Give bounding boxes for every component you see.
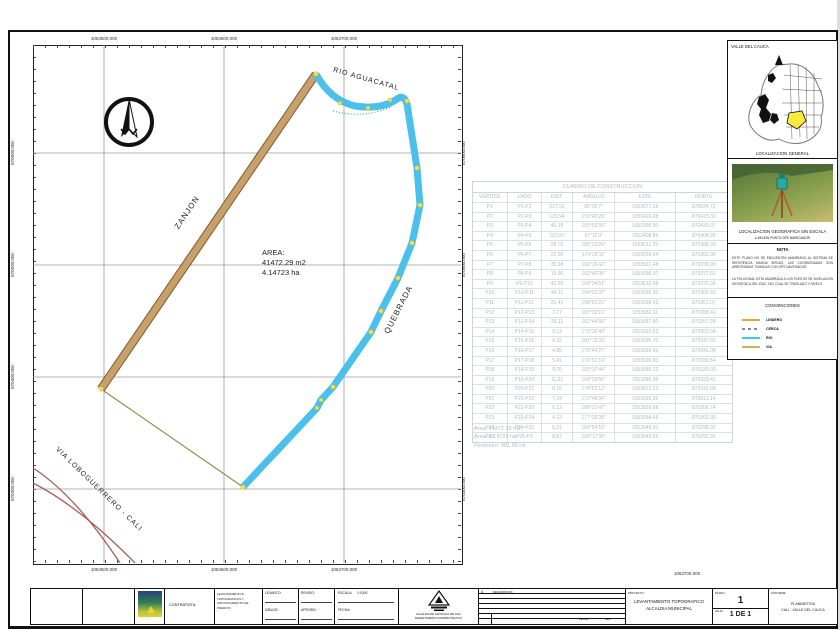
cell-dist: 4.23 — [542, 414, 573, 423]
cell-lado: P15-P16 — [508, 337, 543, 346]
cell-angulo: 154°23'37" — [573, 289, 616, 298]
title-cell-empty-1 — [31, 589, 83, 624]
geographic-localization-caption: LOCALIZACION GEOGRAFICA SIN ESCALA — [728, 229, 837, 234]
cell-norte: 870357.29 — [676, 318, 732, 327]
cell-lado: P5-P6 — [508, 241, 543, 250]
firm-cell: LEVANTAMIENTOS TOPOGRAFICOS Y AMOJONAMIE… — [215, 589, 263, 624]
table-row: P3 P3-P4 46.18 165°52'55" 1053399.90 870… — [473, 222, 732, 232]
cell-vertice: P2 — [473, 213, 508, 222]
legend-item: RIO — [742, 334, 837, 342]
cell-norte: 870292.26 — [676, 433, 732, 442]
cell-lado: P2-P3 — [508, 213, 543, 222]
cell-dist: 8.87 — [542, 433, 573, 442]
cell-este: 1053577.18 — [615, 203, 675, 212]
cell-dist: 9.76 — [542, 366, 573, 375]
cell-angulo: 174°53'12" — [573, 385, 616, 394]
cell-dist: 5.41 — [542, 357, 573, 366]
legend-label: VIA — [766, 345, 772, 349]
cell-lado: P9-P10 — [508, 280, 543, 289]
cell-vertice: P11 — [473, 299, 508, 308]
cell-vertice: P14 — [473, 328, 508, 337]
project-cell: PROYECTO: LEVANTAMIENTO TOPOGRAFICO ALCA… — [626, 589, 713, 624]
cell-norte: 870311.14 — [676, 395, 732, 404]
city-seal-icon — [427, 590, 451, 612]
area-annotation: AREA: 41472.29 m2 4.14723 ha — [262, 248, 306, 278]
cell-vertice: P12 — [473, 309, 508, 318]
cell-este: 1053690.83 — [615, 357, 675, 366]
parcel-boundary-line — [101, 389, 243, 487]
cell-angulo: 168°29'56" — [573, 376, 616, 385]
escala-label: ESCALA: — [338, 591, 352, 595]
cell-norte: 870430.07 — [676, 222, 732, 231]
cell-angulo: 179°42'27" — [573, 347, 616, 356]
cell-lado: P16-P17 — [508, 347, 543, 356]
cell-vertice: P8 — [473, 270, 508, 279]
seal-caption-line: DEPARTAMENTO ADMINISTRATIVO — [399, 617, 478, 621]
cell-dist: 7.77 — [542, 309, 573, 318]
table-row: P20 P20-P21 8.15 174°53'12" 1053672.23 8… — [473, 385, 732, 395]
cell-vertice: P4 — [473, 232, 508, 241]
cell-angulo: 181°15'33" — [573, 337, 616, 346]
cell-dist: 42.92 — [542, 280, 573, 289]
table-row: P23 P23-P24 4.23 177°39'28" 1053654.69 8… — [473, 414, 732, 424]
cell-norte: 870316.68 — [676, 385, 732, 394]
field-line — [338, 602, 394, 603]
legend-item: VIA — [742, 343, 837, 351]
cell-norte: 870634.72 — [676, 203, 732, 212]
cell-norte: 870336.54 — [676, 357, 732, 366]
table-row: P18 P18-P19 9.76 183°37'44" 1053686.22 8… — [473, 366, 732, 376]
cell-norte: 870358.41 — [676, 309, 732, 318]
y-axis-label: 870500.000 — [10, 238, 18, 292]
table-row: P17 P17-P18 5.41 176°51'19" 1053690.83 8… — [473, 357, 732, 367]
note-paragraph-2: LA POLIGONAL ESTA AMARRADA A LOS PUNTOS … — [732, 277, 833, 286]
x-axis-label: 1053600.000 — [194, 36, 254, 41]
logo-triangle-icon — [147, 606, 155, 613]
cell-norte: 870323.41 — [676, 376, 732, 385]
x-axis-label: 1053600.000 — [194, 567, 254, 572]
construction-table-title: CUADRO DE CONSTRUCCION — [473, 182, 732, 193]
field-cell-reviso-aprobo: REVISO: APROBO: — [299, 589, 335, 624]
cell-angulo: 97°11'9" — [573, 232, 616, 241]
cell-lado: P21-P22 — [508, 395, 543, 404]
signature-line — [265, 619, 296, 620]
signature-line — [301, 619, 332, 620]
cell-lado: P17-P18 — [508, 357, 543, 366]
cell-vertice: P23 — [473, 414, 508, 423]
cell-dist: 4.85 — [542, 347, 573, 356]
revision-rev-label: REV — [605, 617, 611, 621]
cell-lado: P4-P5 — [508, 232, 543, 241]
table-row: P8 P8-P9 15.90 192°40'36" 1053596.97 870… — [473, 270, 732, 280]
site-photo — [732, 164, 833, 222]
construction-table-header: VERTICE LADO DIST. ANGULO ESTE NORTE — [473, 193, 732, 203]
table-row: P11 P11-P12 21.41 198°51'22" 1053668.93 … — [473, 299, 732, 309]
cell-norte: 870365.52 — [676, 289, 732, 298]
cell-lado: P12-P13 — [508, 309, 543, 318]
construction-table-body: P1 P1-P2 227.52 86°30'7" 1053577.18 8706… — [473, 203, 732, 442]
cell-lado: P11-P12 — [508, 299, 543, 308]
conventions-panel: CONVENCIONES LINDERO CERCA RIO VIA — [727, 297, 838, 360]
cell-este: 1053672.23 — [615, 385, 675, 394]
cell-angulo: 169°54'16" — [573, 424, 616, 433]
y-axis-label: 870400.000 — [10, 350, 18, 404]
cell-dist: 46.18 — [542, 222, 573, 231]
legend-line-swatch — [742, 319, 760, 321]
firm-line: AMOJONAMIENTO DE PREDIOS — [217, 601, 260, 610]
conventions-title: CONVENCIONES — [728, 303, 837, 308]
cell-este: 1053680.11 — [615, 309, 675, 318]
cell-vertice: P20 — [473, 385, 508, 394]
cell-angulo: 176°51'19" — [573, 357, 616, 366]
cell-vertice: P17 — [473, 357, 508, 366]
cell-lado: P14-P15 — [508, 328, 543, 337]
cell-este: 1053655.30 — [615, 289, 675, 298]
cell-vertice: P5 — [473, 241, 508, 250]
cell-dist: 11.31 — [542, 376, 573, 385]
summary-area-m2: Area: 41472.29 m2 — [474, 425, 525, 433]
cell-lado: P19-P20 — [508, 376, 543, 385]
cell-lado: P8-P9 — [508, 270, 543, 279]
cell-norte: 870302.35 — [676, 414, 732, 423]
cell-angulo: 173°26'40" — [573, 328, 616, 337]
contiene-label: CONTIENE: — [771, 591, 786, 595]
cell-vertice: P6 — [473, 251, 508, 260]
seal-caption: ALCALDIA DE SANTIAGO DE CALI DEPARTAMENT… — [399, 613, 478, 620]
legend-item: LINDERO — [742, 316, 837, 324]
summary-perimeter: Perimetro: 981.90 mt — [474, 442, 525, 450]
cell-dist: 15.90 — [542, 270, 573, 279]
legend-list: LINDERO CERCA RIO VIA — [728, 316, 837, 352]
cell-norte: 870361.07 — [676, 299, 732, 308]
table-row: P4 P4-P5 103.87 97°11'9" 1053408.84 8704… — [473, 232, 732, 242]
legend-line-swatch — [742, 346, 760, 348]
geographic-localization-panel: LOCALIZACION GEOGRAFICA SIN ESCALA ● MOJ… — [727, 158, 838, 245]
table-row: P19 P19-P20 11.31 168°29'56" 1053680.96 … — [473, 376, 732, 386]
cell-este: 1053668.93 — [615, 299, 675, 308]
table-row: P15 P15-P16 4.32 181°15'33" 1053695.70 8… — [473, 337, 732, 347]
x-axis-label: 1053500.000 — [74, 36, 134, 41]
cell-angulo: 170°43'25" — [573, 213, 616, 222]
cell-vertice: P10 — [473, 289, 508, 298]
cell-dist: 103.87 — [542, 232, 573, 241]
note-paragraph-1: ESTE PLANO NO SE ENCUENTRA AMARRADO AL S… — [732, 256, 833, 270]
signature-line — [301, 602, 332, 603]
cell-angulo: 172°48'34" — [573, 395, 616, 404]
cell-norte: 870473.30 — [676, 213, 732, 222]
cell-dist: 28.76 — [542, 241, 573, 250]
revision-table: A DESCRIPCION FECHA REV — [479, 589, 626, 624]
cell-lado: P18-P19 — [508, 366, 543, 375]
note-panel: NOTA ESTE PLANO NO SE ENCUENTRA AMARRADO… — [727, 243, 838, 299]
cell-angulo: 177°39'28" — [573, 414, 616, 423]
cell-dist: 4.32 — [542, 337, 573, 346]
contractor-logo-cell: ···· — [135, 589, 165, 624]
cell-dist: 25.11 — [542, 318, 573, 327]
cell-dist: 9.13 — [542, 328, 573, 337]
revision-fecha-label: FECHA — [579, 617, 588, 621]
plano-number: 1 — [713, 595, 768, 606]
table-row: P7 P7-P8 35.98 166°15'42" 1053561.48 870… — [473, 261, 732, 271]
cell-lado: P22-P23 — [508, 404, 543, 413]
cell-lado: P7-P8 — [508, 261, 543, 270]
cell-dist: 8.15 — [542, 385, 573, 394]
x-axis-label: 1053500.000 — [74, 567, 134, 572]
title-cell-empty-2 — [83, 589, 135, 624]
project-title: LEVANTAMIENTO TOPOGRAFICO ALCALDIA MUNIC… — [626, 598, 712, 612]
contratista-cell: CONTRATISTA: — [165, 589, 215, 624]
table-row: P2 P2-P3 120.94 170°43'25" 1053416.08 87… — [473, 213, 732, 223]
cell-angulo: 183°37'44" — [573, 366, 616, 375]
cell-este: 1053649.90 — [615, 424, 675, 433]
cell-angulo: 186°21'47" — [573, 404, 616, 413]
table-row: P14 P14-P15 9.13 173°26'40" 1053692.63 8… — [473, 328, 732, 338]
contents-line: CALI - VALLE DEL CAUCA — [769, 607, 837, 613]
col-lado: LADO — [508, 193, 543, 202]
cell-este: 1053596.97 — [615, 270, 675, 279]
cell-angulo: 168°34'51" — [573, 280, 616, 289]
cell-dist: 44.11 — [542, 289, 573, 298]
cell-este: 1053408.84 — [615, 232, 675, 241]
legend-line-swatch — [742, 328, 760, 330]
cell-norte: 870330.03 — [676, 366, 732, 375]
table-row: P5 P5-P6 28.76 185°33'20" 1053511.29 870… — [473, 241, 732, 251]
cell-este: 1053686.22 — [615, 366, 675, 375]
cell-dist: 5.12 — [542, 404, 573, 413]
col-angulo: ANGULO — [573, 193, 616, 202]
cell-lado: P10-P11 — [508, 289, 543, 298]
cell-norte: 870347.55 — [676, 337, 732, 346]
cell-lado: P6-P7 — [508, 251, 543, 260]
cell-dist: 7.24 — [542, 395, 573, 404]
cell-lado: P23-P24 — [508, 414, 543, 423]
table-row: P22 P22-P23 5.12 186°21'47" 1053659.58 8… — [473, 404, 732, 414]
col-norte: NORTE — [676, 193, 732, 202]
cell-este: 1053654.69 — [615, 414, 675, 423]
cell-vertice: P7 — [473, 261, 508, 270]
cell-vertice: P1 — [473, 203, 508, 212]
hoja-value: 1 DE 1 — [713, 611, 768, 618]
x-axis-label: 1053700.000 — [314, 36, 374, 41]
cell-lado: P1-P2 — [508, 203, 543, 212]
cell-angulo: 174°28'11" — [573, 251, 616, 260]
legend-item: CERCA — [742, 325, 837, 333]
cell-vertice: P15 — [473, 337, 508, 346]
cell-este: 1053695.70 — [615, 337, 675, 346]
table-row: P21 P21-P22 7.24 172°48'34" 1053665.36 8… — [473, 395, 732, 405]
field-line — [338, 619, 394, 620]
cell-lado: P13-P14 — [508, 318, 543, 327]
dibujo-label: DIBUJO: — [265, 608, 278, 612]
area-title: AREA: — [262, 248, 306, 258]
area-m2: 41472.29 m2 — [262, 258, 306, 268]
escala-value: 1:1000 — [357, 591, 367, 595]
cell-vertice: P3 — [473, 222, 508, 231]
col-este: ESTE — [615, 193, 675, 202]
mini-north-arrow-icon — [775, 55, 783, 65]
cell-este: 1053692.63 — [615, 328, 675, 337]
contents-text: PLANIMETRIA CALI - VALLE DEL CAUCA — [769, 601, 837, 613]
table-row: P1 P1-P2 227.52 86°30'7" 1053577.18 8706… — [473, 203, 732, 213]
logo-dots: ···· — [135, 616, 159, 620]
cell-dist: 21.41 — [542, 299, 573, 308]
cell-este: 1053612.68 — [615, 280, 675, 289]
cell-norte: 870388.03 — [676, 241, 732, 250]
revision-row — [479, 614, 625, 619]
cell-este: 1053539.64 — [615, 251, 675, 260]
proyecto-label: PROYECTO: — [628, 591, 644, 595]
revision-divider — [491, 614, 492, 624]
cell-vertice: P13 — [473, 318, 508, 327]
cell-angulo: 185°33'20" — [573, 241, 616, 250]
cell-angulo: 168°17'30" — [573, 433, 616, 442]
cell-norte: 870298.02 — [676, 424, 732, 433]
note-title: NOTA — [728, 247, 837, 252]
y-axis-label: 870600.000 — [10, 126, 18, 180]
cell-angulo: 166°15'42" — [573, 261, 616, 270]
legend-line-swatch — [742, 337, 760, 339]
cell-norte: 870370.34 — [676, 280, 732, 289]
contents-cell: CONTIENE: PLANIMETRIA CALI - VALLE DEL C… — [769, 589, 837, 624]
x-axis-label: 1053700.000 — [655, 571, 719, 576]
col-dist: DIST. — [542, 193, 573, 202]
cell-vertice: P19 — [473, 376, 508, 385]
table-row: P16 P16-P17 4.85 179°42'27" 1053693.00 8… — [473, 347, 732, 357]
cell-norte: 870404.95 — [676, 232, 732, 241]
col-vertice: VERTICE — [473, 193, 508, 202]
plan-sheet: 1053500.000 1053600.000 1053700.000 1053… — [0, 0, 840, 630]
cell-este: 1053659.58 — [615, 404, 675, 413]
cell-lado: P20-P21 — [508, 385, 543, 394]
levanto-label: LEVANTO: — [265, 591, 281, 595]
table-row: P6 P6-P7 22.30 174°28'11" 1053539.64 870… — [473, 251, 732, 261]
cell-angulo: 86°30'7" — [573, 203, 616, 212]
cell-este: 1053665.36 — [615, 395, 675, 404]
cell-este: 1053643.09 — [615, 433, 675, 442]
field-cell-escala-fecha: ESCALA: 1:1000 FECHA: — [335, 589, 399, 624]
fecha-label: FECHA: — [338, 608, 350, 612]
table-row: P12 P12-P13 7.77 187°32'15" 1053680.11 8… — [473, 309, 732, 319]
aprobo-label: APROBO: — [301, 608, 316, 612]
cell-norte: 870372.81 — [676, 270, 732, 279]
cell-angulo: 192°40'36" — [573, 270, 616, 279]
gps-point-note: ● MOJON PUNTO GPS NAVEGADOR — [728, 236, 837, 240]
tripod-illustration — [732, 164, 833, 222]
cell-angulo: 187°32'15" — [573, 309, 616, 318]
cell-lado: P3-P4 — [508, 222, 543, 231]
table-summary: Area: 41472.29 m2 Area: 4.14723 ha Perim… — [474, 425, 525, 450]
cell-dist: 22.30 — [542, 251, 573, 260]
table-row: P9 P9-P10 42.92 168°34'51" 1053612.68 87… — [473, 280, 732, 290]
cell-este: 1053416.08 — [615, 213, 675, 222]
cell-norte: 870353.64 — [676, 328, 732, 337]
cell-dist: 5.21 — [542, 424, 573, 433]
cell-dist: 227.52 — [542, 203, 573, 212]
cell-angulo: 165°52'55" — [573, 222, 616, 231]
area-ha: 4.14723 ha — [262, 268, 306, 278]
cell-este: 1053693.00 — [615, 347, 675, 356]
contratista-label: CONTRATISTA: — [169, 603, 196, 607]
cell-vertice: P9 — [473, 280, 508, 289]
cell-angulo: 198°51'22" — [573, 299, 616, 308]
table-row: P13 P13-P14 25.11 162°44'58" 1053687.80 … — [473, 318, 732, 328]
cell-angulo: 162°44'58" — [573, 318, 616, 327]
summary-area-ha: Area: 4.14723 ha — [474, 433, 525, 441]
y-axis-label: 870300.000 — [10, 462, 18, 516]
municipal-seal-cell: ALCALDIA DE SANTIAGO DE CALI DEPARTAMENT… — [399, 589, 479, 624]
signature-line — [265, 602, 296, 603]
cell-este: 1053511.29 — [615, 241, 675, 250]
field-cell-levanto-dibujo: LEVANTO: DIBUJO: — [263, 589, 299, 624]
cell-vertice: P18 — [473, 366, 508, 375]
cell-dist: 35.98 — [542, 261, 573, 270]
cell-este: 1053399.90 — [615, 222, 675, 231]
cell-vertice: P22 — [473, 404, 508, 413]
general-localization-caption: LOCALIZACION GENERAL — [728, 151, 837, 156]
firm-info: LEVANTAMIENTOS TOPOGRAFICOS Y AMOJONAMIE… — [215, 589, 262, 613]
cell-norte: 870341.08 — [676, 347, 732, 356]
cell-este: 1053680.96 — [615, 376, 675, 385]
cell-norte: 870383.36 — [676, 251, 732, 260]
legend-label: CERCA — [766, 327, 779, 331]
reviso-label: REVISO: — [301, 591, 315, 595]
region-label: VALLE DEL CAUCA — [731, 44, 769, 49]
department-map — [732, 51, 833, 146]
project-line: ALCALDIA MUNICIPAL — [626, 605, 712, 612]
cell-norte: 870378.90 — [676, 261, 732, 270]
cell-dist: 120.94 — [542, 213, 573, 222]
cell-norte: 870306.74 — [676, 404, 732, 413]
title-block: ···· CONTRATISTA: LEVANTAMIENTOS TOPOGRA… — [30, 588, 838, 625]
legend-label: LINDERO — [766, 318, 782, 322]
north-arrow-icon — [106, 99, 152, 145]
construction-table: CUADRO DE CONSTRUCCION VERTICE LADO DIST… — [472, 181, 733, 443]
cell-vertice: P21 — [473, 395, 508, 404]
table-row: P10 P10-P11 44.11 154°23'37" 1053655.30 … — [473, 289, 732, 299]
cell-este: 1053687.80 — [615, 318, 675, 327]
project-line: LEVANTAMIENTO TOPOGRAFICO — [626, 598, 712, 605]
cell-este: 1053561.48 — [615, 261, 675, 270]
general-localization-panel: VALLE DEL CAUCA LOCALIZACION GENERAL — [727, 40, 838, 160]
legend-label: RIO — [766, 336, 772, 340]
contractor-logo-icon — [138, 591, 162, 617]
x-axis-label: 1053700.000 — [314, 567, 374, 572]
cell-vertice: P16 — [473, 347, 508, 356]
sheet-number-cell: PLANO: 1 HOJA: 1 DE 1 — [713, 589, 769, 624]
